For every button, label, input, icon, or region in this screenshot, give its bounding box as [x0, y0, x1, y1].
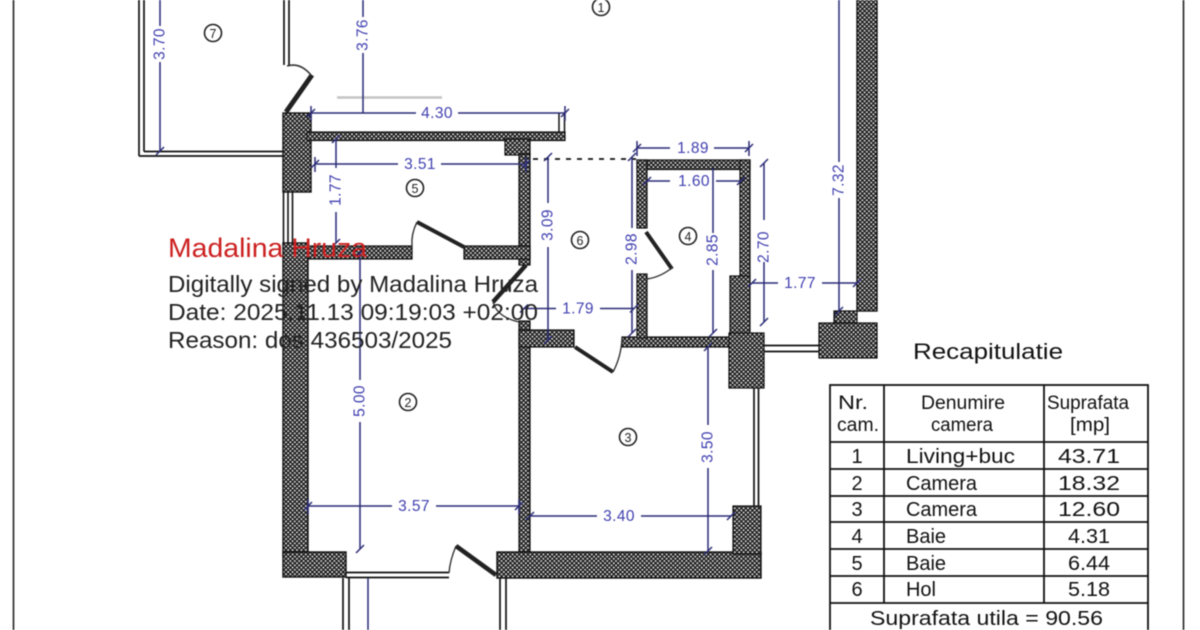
- svg-text:2.98: 2.98: [624, 233, 641, 265]
- svg-text:3.51: 3.51: [404, 156, 436, 173]
- svg-text:Denumire: Denumire: [921, 393, 1005, 414]
- svg-text:5.18: 5.18: [1068, 579, 1110, 601]
- svg-text:2: 2: [405, 396, 412, 410]
- svg-text:Nr.: Nr.: [838, 393, 868, 414]
- svg-text:6.44: 6.44: [1068, 553, 1110, 575]
- svg-text:4.31: 4.31: [1068, 526, 1110, 548]
- svg-text:1: 1: [598, 1, 605, 15]
- svg-text:1.79: 1.79: [562, 301, 594, 318]
- svg-text:3: 3: [625, 431, 632, 445]
- svg-text:1.77: 1.77: [784, 275, 816, 292]
- svg-text:4: 4: [851, 526, 862, 548]
- svg-text:2.85: 2.85: [705, 234, 722, 266]
- svg-text:Living+buc: Living+buc: [906, 446, 1015, 468]
- svg-text:Baie: Baie: [906, 526, 946, 548]
- svg-text:Date: 2025.11.13 09:19:03 +02:: Date: 2025.11.13 09:19:03 +02:00: [168, 299, 538, 325]
- svg-text:2: 2: [851, 473, 862, 495]
- svg-text:1: 1: [851, 446, 862, 468]
- svg-text:Baie: Baie: [906, 553, 946, 575]
- svg-text:camera: camera: [931, 415, 993, 436]
- svg-text:Recapitulatie: Recapitulatie: [913, 339, 1063, 364]
- svg-text:cam.: cam.: [837, 415, 879, 436]
- svg-text:3: 3: [851, 499, 862, 521]
- svg-text:3.57: 3.57: [398, 498, 430, 515]
- svg-text:3.50: 3.50: [700, 431, 717, 463]
- svg-text:Hol: Hol: [906, 579, 936, 601]
- svg-text:Suprafata utila = 90.56: Suprafata utila = 90.56: [870, 608, 1103, 630]
- svg-text:2.70: 2.70: [756, 231, 773, 263]
- svg-text:6: 6: [577, 234, 584, 248]
- svg-text:7: 7: [210, 27, 217, 41]
- svg-text:3.40: 3.40: [603, 508, 635, 525]
- svg-text:Digitally signed by Madalina H: Digitally signed by Madalina Hruza: [168, 271, 538, 297]
- svg-text:1.77: 1.77: [328, 174, 345, 206]
- svg-text:Camera: Camera: [906, 499, 978, 521]
- svg-text:3.70: 3.70: [152, 28, 169, 60]
- svg-text:1.60: 1.60: [678, 173, 710, 190]
- svg-text:3.76: 3.76: [355, 19, 372, 51]
- svg-text:Suprafata: Suprafata: [1047, 393, 1129, 414]
- svg-text:6: 6: [851, 579, 862, 601]
- svg-text:1.89: 1.89: [677, 140, 709, 157]
- svg-text:Madalina Hruza: Madalina Hruza: [168, 233, 368, 263]
- svg-text:43.71: 43.71: [1058, 446, 1120, 468]
- svg-text:5: 5: [851, 553, 862, 575]
- svg-text:Reason: dos 436503/2025: Reason: dos 436503/2025: [168, 327, 452, 353]
- svg-text:[mp]: [mp]: [1070, 415, 1110, 436]
- svg-text:3.09: 3.09: [540, 209, 557, 241]
- svg-text:18.32: 18.32: [1058, 473, 1120, 495]
- svg-text:Camera: Camera: [906, 473, 978, 495]
- svg-text:7.32: 7.32: [831, 164, 848, 196]
- svg-text:4.30: 4.30: [421, 105, 453, 122]
- svg-text:5.00: 5.00: [352, 385, 369, 417]
- svg-text:5: 5: [412, 182, 419, 196]
- svg-text:4: 4: [685, 230, 692, 244]
- svg-text:12.60: 12.60: [1058, 499, 1120, 521]
